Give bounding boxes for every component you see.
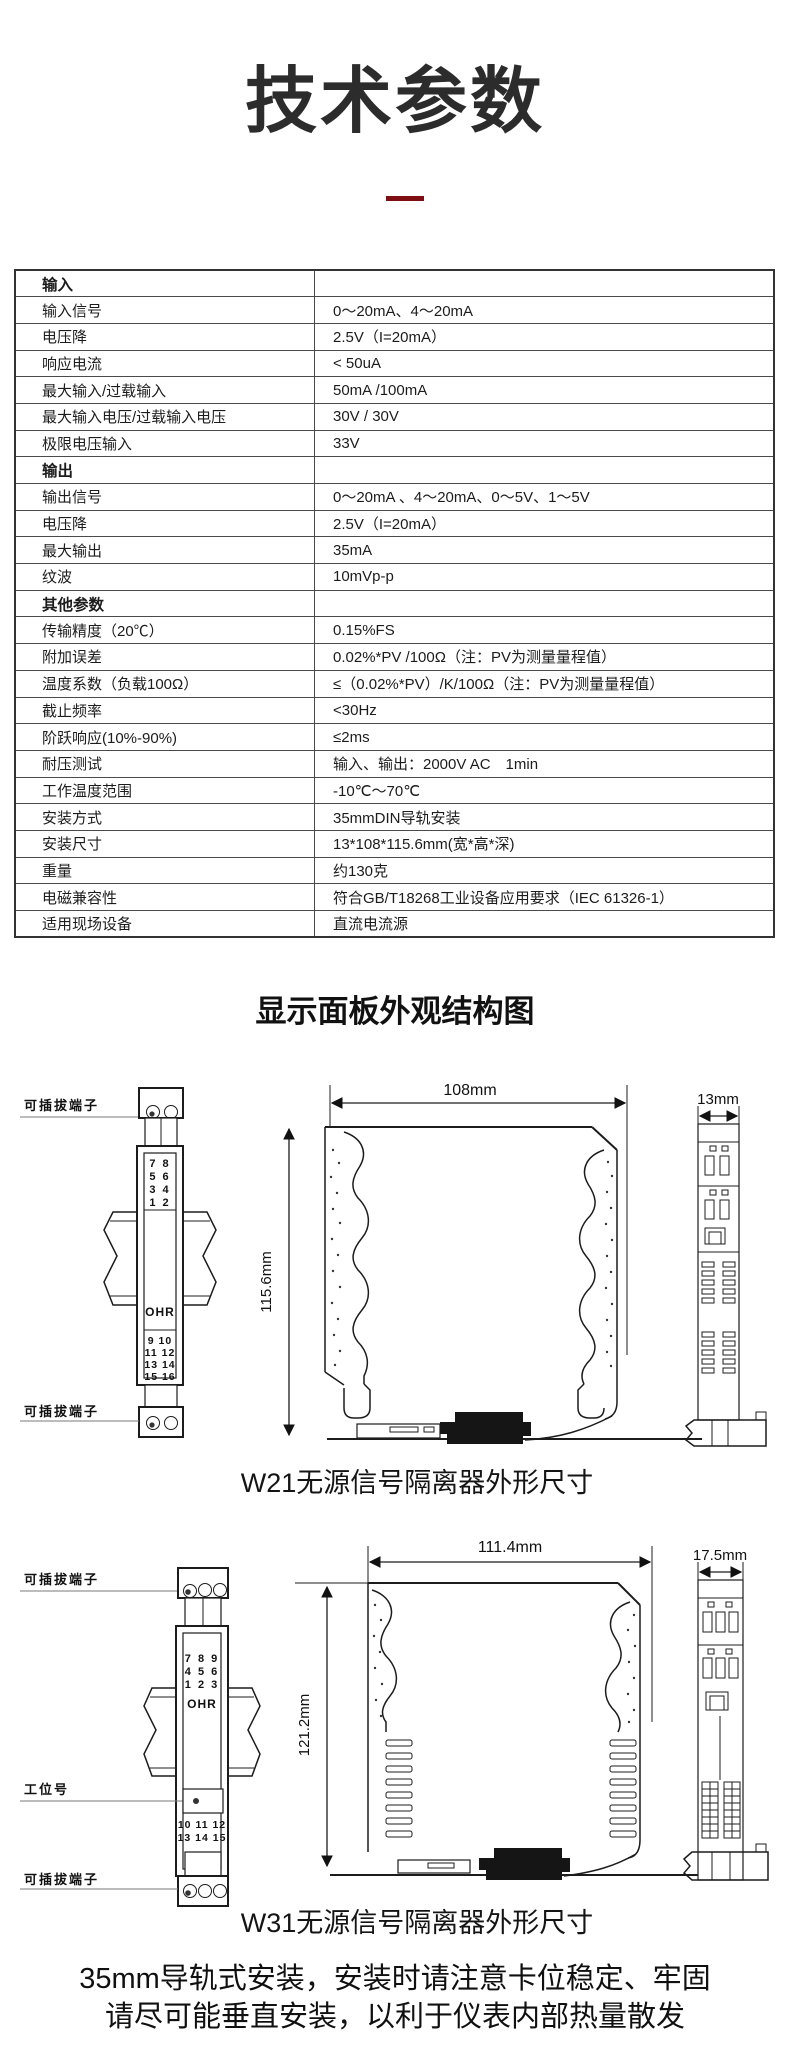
spec-value: 13*108*115.6mm(宽*高*深) (315, 830, 775, 857)
rail-clip (398, 1860, 470, 1873)
texture-dots (627, 1614, 636, 1723)
spec-value: -10℃～70℃ (315, 777, 775, 804)
spec-label: 耐压测试 (15, 750, 315, 777)
w31-terminal-label-top: 可插拔端子 (24, 1572, 99, 1587)
wavy-edge (372, 1590, 396, 1732)
w21-caption: W21无源信号隔离器外形尺寸 (30, 1461, 790, 1500)
table-row: 输出信号0～20mA 、4～20mA、0～5V、1～5V (15, 484, 774, 511)
spec-label: 最大输出 (15, 537, 315, 564)
w21-height-dim: 115.6mm (258, 1251, 275, 1312)
spec-value: 输入、输出：2000V AC 1min (315, 750, 775, 777)
table-row: 最大输入/过载输入50mA /100mA (15, 377, 774, 404)
terminal-row: 13 14 (144, 1359, 175, 1371)
terminal-block-bottom (139, 1407, 183, 1437)
table-row: 适用现场设备直流电流源 (15, 911, 774, 938)
table-row: 截止频率<30Hz (15, 697, 774, 724)
spec-value: 0～20mA、4～20mA (315, 297, 775, 324)
spec-label: 输入 (15, 270, 315, 297)
spec-value: 35mmDIN导轨安装 (315, 804, 775, 831)
install-note-line1: 35mm导轨式安装，安装时请注意卡位稳定、牢固 (0, 1960, 790, 1998)
w31-terminal-label-bottom: 可插拔端子 (24, 1872, 99, 1887)
spec-label: 最大输入电压/过载输入电压 (15, 403, 315, 430)
install-note: 35mm导轨式安装，安装时请注意卡位稳定、牢固 请尽可能垂直安装，以利于仪表内部… (0, 1960, 790, 2036)
table-row: 电压降2.5V（I=20mA） (15, 510, 774, 537)
spec-label: 输出信号 (15, 484, 315, 511)
spec-label: 温度系数（负载100Ω） (15, 670, 315, 697)
end-body (698, 1124, 739, 1420)
spec-value: ≤（0.02%*PV）/K/100Ω（注：PV为测量量程值） (315, 670, 775, 697)
spec-label: 附加误差 (15, 644, 315, 671)
spec-value (315, 270, 775, 297)
spec-value: 直流电流源 (315, 911, 775, 938)
table-row: 其他参数 (15, 590, 774, 617)
spec-value: 2.5V（I=20mA） (315, 323, 775, 350)
w21-end-view: 13mm (686, 1091, 766, 1446)
rib-foot (344, 1384, 370, 1418)
table-row: 温度系数（负载100Ω）≤（0.02%*PV）/K/100Ω（注：PV为测量量程… (15, 670, 774, 697)
vent-slots (610, 1740, 636, 1837)
spec-value: 35mA (315, 537, 775, 564)
wavy-edge (344, 1132, 368, 1384)
w31-end-view: 17.5mm (684, 1547, 768, 1880)
table-row: 最大输入电压/过载输入电压30V / 30V (15, 403, 774, 430)
brand-logo: OHR (145, 1305, 175, 1319)
connector-bottom (145, 1385, 177, 1407)
w31-depth-dim: 17.5mm (693, 1547, 747, 1564)
spec-value: 10mVp-p (315, 564, 775, 591)
rail-clip (357, 1424, 440, 1438)
spec-value: 30V / 30V (315, 403, 775, 430)
spec-value: 符合GB/T18268工业设备应用要求（IEC 61326-1） (315, 884, 775, 911)
texture-dots (373, 1604, 383, 1717)
terminal-row: 15 16 (144, 1371, 175, 1383)
wavy-edge (580, 1150, 604, 1384)
w31-side-view: 111.4mm 121.2mm (295, 1539, 700, 1880)
connector-bottom (185, 1852, 221, 1876)
spec-value: < 50uA (315, 350, 775, 377)
table-row: 输入信号0～20mA、4～20mA (15, 297, 774, 324)
w21-width-dim: 108mm (443, 1082, 496, 1099)
spec-label: 重量 (15, 857, 315, 884)
brand-logo: OHR (187, 1697, 217, 1711)
spec-label: 最大输入/过载输入 (15, 377, 315, 404)
spec-label: 截止频率 (15, 697, 315, 724)
table-row: 重量约130克 (15, 857, 774, 884)
table-row: 最大输出35mA (15, 537, 774, 564)
table-row: 输入 (15, 270, 774, 297)
table-row: 附加误差0.02%*PV /100Ω（注：PV为测量量程值） (15, 644, 774, 671)
spec-value: 0.02%*PV /100Ω（注：PV为测量量程值） (315, 644, 775, 671)
release-lever (564, 1854, 636, 1876)
spec-label: 传输精度（20℃） (15, 617, 315, 644)
terminal-row: 4 5 6 (185, 1666, 219, 1678)
terminal-numbers-bottom: 10 11 12 13 14 15 (178, 1819, 227, 1844)
spec-label: 适用现场设备 (15, 911, 315, 938)
w31-width-dim: 111.4mm (478, 1539, 542, 1556)
table-row: 电压降2.5V（I=20mA） (15, 323, 774, 350)
leader-dot (193, 1798, 199, 1804)
table-row: 安装尺寸13*108*115.6mm(宽*高*深) (15, 830, 774, 857)
terminal-numbers-top: 7 8 9 4 5 6 1 2 3 (185, 1653, 219, 1691)
spec-label: 阶跃响应(10%-90%) (15, 724, 315, 751)
w21-outline-diagram: 可插拔端子 7 8 5 6 3 4 1 2 OHR (0, 1060, 790, 1460)
spec-value: 50mA /100mA (315, 377, 775, 404)
spec-table: 输入 输入信号0～20mA、4～20mA 电压降2.5V（I=20mA） 响应电… (14, 269, 775, 938)
spec-value (315, 457, 775, 484)
spec-value: ≤2ms (315, 724, 775, 751)
w21-terminal-label-bottom: 可插拔端子 (24, 1404, 99, 1419)
spec-label: 极限电压输入 (15, 430, 315, 457)
wavy-edge (606, 1602, 630, 1732)
terminal-row: 1 2 (149, 1197, 170, 1209)
spec-label: 输出 (15, 457, 315, 484)
w31-front-view: 可插拔端子 7 8 9 4 5 6 1 2 3 OHR 工位号 (20, 1568, 260, 1906)
table-row: 电磁兼容性符合GB/T18268工业设备应用要求（IEC 61326-1） (15, 884, 774, 911)
section-title: 显示面板外观结构图 (0, 986, 790, 1031)
spec-value: 2.5V（I=20mA） (315, 510, 775, 537)
station-tag (183, 1789, 223, 1813)
w31-caption: W31无源信号隔离器外形尺寸 (30, 1901, 790, 1940)
table-row: 纹波10mVp-p (15, 564, 774, 591)
spec-value: 0.15%FS (315, 617, 775, 644)
w21-side-view: 108mm 115.6mm (258, 1082, 702, 1444)
w21-front-view: 可插拔端子 7 8 5 6 3 4 1 2 OHR (20, 1088, 216, 1437)
w21-terminal-label-top: 可插拔端子 (24, 1098, 99, 1113)
table-row: 响应电流< 50uA (15, 350, 774, 377)
spec-value (315, 590, 775, 617)
spec-label: 安装方式 (15, 804, 315, 831)
texture-dots (330, 1149, 341, 1366)
clamp-block (447, 1412, 531, 1444)
table-row: 阶跃响应(10%-90%)≤2ms (15, 724, 774, 751)
table-row: 输出 (15, 457, 774, 484)
table-row: 安装方式35mmDIN导轨安装 (15, 804, 774, 831)
spec-label: 安装尺寸 (15, 830, 315, 857)
install-note-line2: 请尽可能垂直安装，以利于仪表内部热量散发 (0, 1998, 790, 2036)
title-underline (386, 196, 424, 201)
spec-label: 电磁兼容性 (15, 884, 315, 911)
spec-label: 输入信号 (15, 297, 315, 324)
vent-slots (386, 1740, 412, 1837)
terminal-block-top (139, 1088, 183, 1118)
terminal-row: 7 8 (149, 1158, 170, 1170)
clamp-block (486, 1848, 570, 1880)
rib-foot (578, 1384, 617, 1419)
table-row: 工作温度范围-10℃～70℃ (15, 777, 774, 804)
w21-depth-dim: 13mm (697, 1091, 739, 1108)
spec-value: <30Hz (315, 697, 775, 724)
spec-label: 纹波 (15, 564, 315, 591)
spec-value: 约130克 (315, 857, 775, 884)
w31-height-dim: 121.2mm (296, 1694, 313, 1757)
terminal-row: 9 10 (148, 1335, 172, 1347)
page-title: 技术参数 (0, 42, 790, 147)
release-lever (525, 1416, 612, 1440)
w31-outline-diagram: 可插拔端子 7 8 9 4 5 6 1 2 3 OHR 工位号 (0, 1510, 790, 1910)
terminal-row: 13 14 15 (178, 1832, 227, 1844)
spec-value: 33V (315, 430, 775, 457)
spec-label: 电压降 (15, 510, 315, 537)
terminal-row: 11 12 (145, 1347, 176, 1359)
terminal-row: 1 2 3 (185, 1679, 219, 1691)
terminal-row: 3 4 (149, 1184, 170, 1196)
spec-label: 其他参数 (15, 590, 315, 617)
spec-label: 电压降 (15, 323, 315, 350)
spec-value: 0～20mA 、4～20mA、0～5V、1～5V (315, 484, 775, 511)
spec-label: 工作温度范围 (15, 777, 315, 804)
spec-label: 响应电流 (15, 350, 315, 377)
terminal-row: 7 8 9 (185, 1653, 219, 1665)
texture-dots (605, 1161, 613, 1367)
table-row: 耐压测试输入、输出：2000V AC 1min (15, 750, 774, 777)
terminal-numbers-top: 7 8 5 6 3 4 1 2 (149, 1158, 170, 1209)
table-row: 传输精度（20℃）0.15%FS (15, 617, 774, 644)
terminal-numbers-bottom: 9 10 11 12 13 14 15 16 (144, 1335, 175, 1383)
station-tag-label: 工位号 (24, 1782, 69, 1797)
terminal-row: 5 6 (149, 1171, 170, 1183)
table-row: 极限电压输入33V (15, 430, 774, 457)
terminal-row: 10 11 12 (178, 1819, 226, 1831)
terminal-block-top (178, 1568, 228, 1598)
